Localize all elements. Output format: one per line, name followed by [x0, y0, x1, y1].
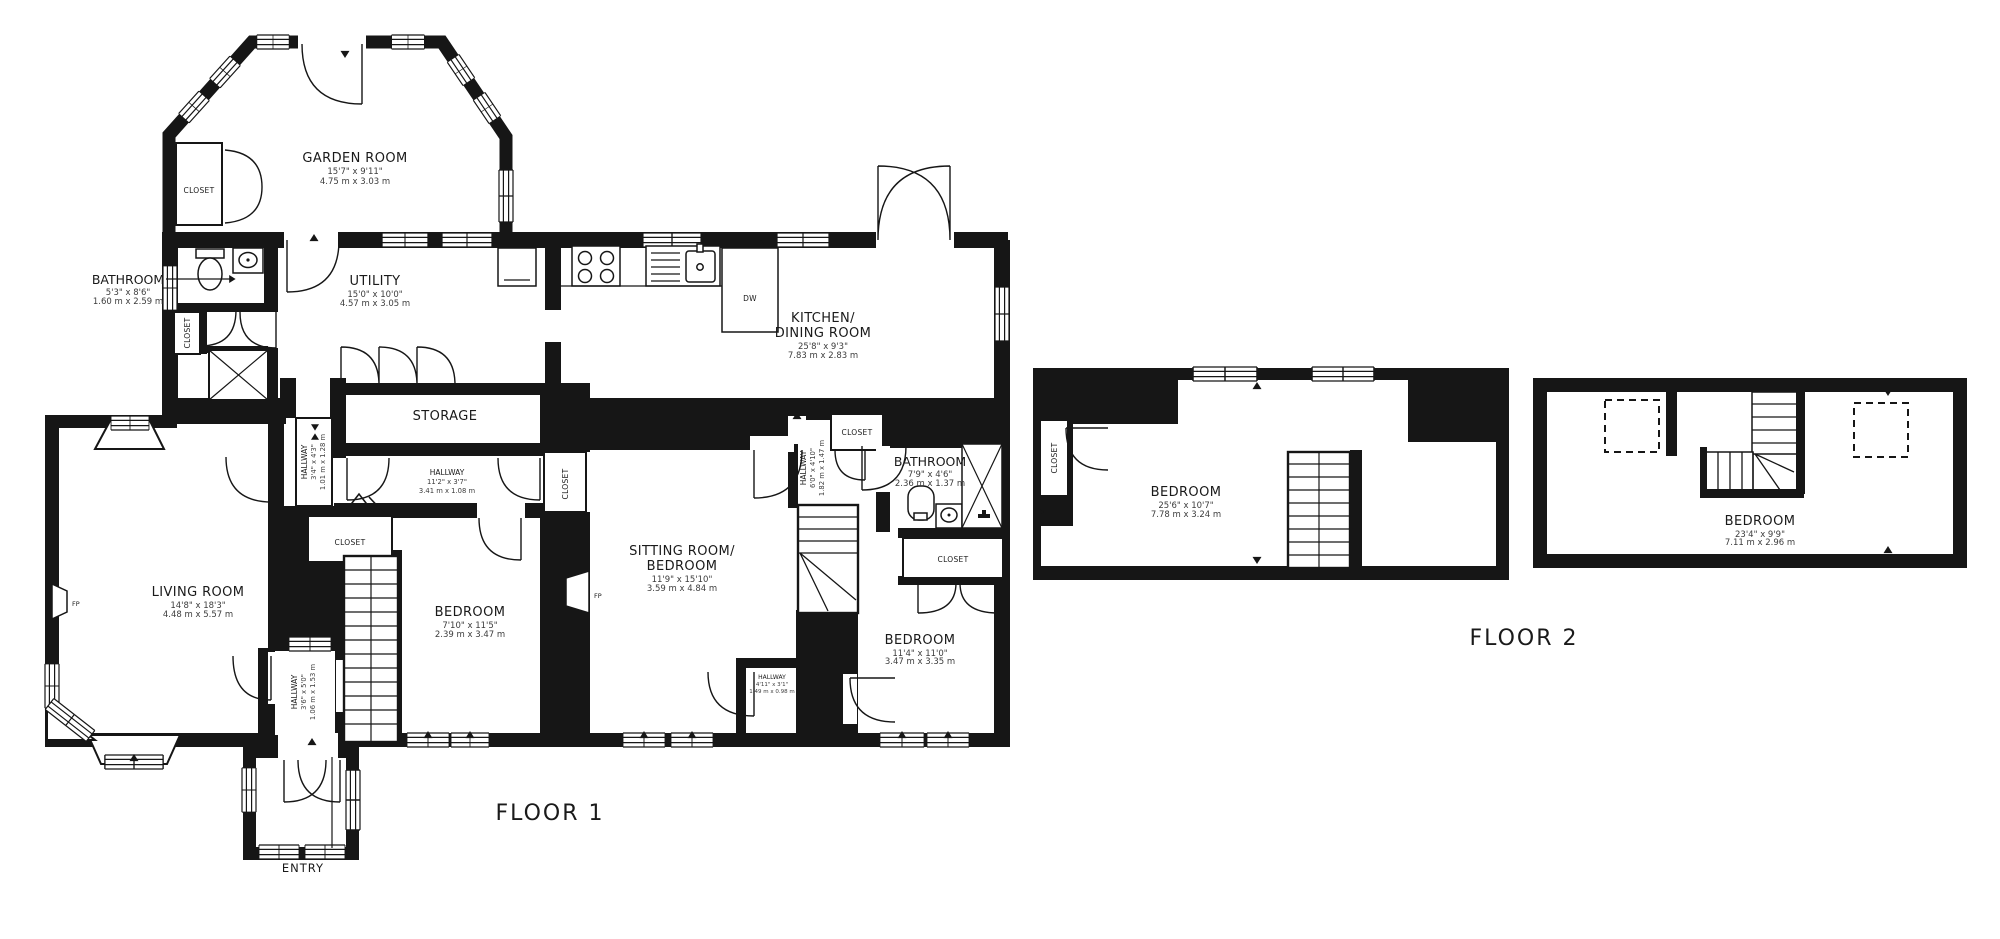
garden-room-label: GARDEN ROOM [302, 151, 407, 166]
floor2-right-plan: BEDROOM 23'4" x 9'9" 7.11 m x 2.96 m FLO… [1469, 378, 1967, 651]
hallway-main-size-m: 3.41 m x 1.08 m [419, 487, 476, 495]
toilet-icon [908, 486, 934, 520]
closet-label: CLOSET [842, 428, 873, 437]
hallway-side-size-m: 1.01 m x 1.28 m [319, 434, 327, 491]
floor1-stairs [344, 505, 858, 742]
window-icon [259, 845, 299, 859]
utility-label: UTILITY [349, 274, 400, 289]
bedroom1-label: BEDROOM [435, 605, 506, 620]
bedroom2-size-m: 3.47 m x 3.35 m [885, 657, 955, 667]
sitting-room-label-line1: SITTING ROOM/ [629, 544, 735, 559]
kitchen-size-m: 7.83 m x 2.83 m [788, 351, 858, 361]
window-icon [392, 35, 425, 49]
closet-label: CLOSET [1050, 442, 1059, 473]
living-room-size-m: 4.48 m x 5.57 m [163, 610, 233, 620]
hallway-entry-size-m: 1.06 m x 1.53 m [309, 664, 317, 721]
closet-label: CLOSET [335, 538, 366, 547]
kitchen-label-line2: DINING ROOM [775, 326, 871, 341]
entry-label: ENTRY [282, 861, 324, 875]
sitting-room-size-m: 3.59 m x 4.84 m [647, 584, 717, 594]
hallway-main-label: HALLWAY [430, 468, 465, 477]
window-icon [643, 233, 701, 247]
window-icon [257, 35, 289, 49]
floor2-left-plan: CLOSET BEDROOM 25'6" x 10'7" 7.78 m x 3.… [1033, 367, 1509, 580]
bathroom1-size-m: 1.60 m x 2.59 m [93, 297, 163, 307]
floor2-title: FLOOR 2 [1469, 626, 1578, 651]
closet-label: CLOSET [183, 317, 192, 348]
floor1-plan: GARDEN ROOM 15'7" x 9'11" 4.75 m x 3.03 … [45, 34, 1010, 875]
bathroom1-label: BATHROOM [92, 272, 164, 287]
window-icon [382, 233, 428, 247]
hallway-mid-label: HALLWAY [799, 450, 808, 485]
window-icon [305, 845, 345, 859]
closet-label: CLOSET [561, 468, 570, 499]
bedroom1-size-m: 2.39 m x 3.47 m [435, 630, 505, 640]
bathroom2-label: BATHROOM [894, 454, 966, 469]
kitchen-label-line1: KITCHEN/ [791, 311, 855, 326]
sink-icon [936, 504, 962, 528]
floorplan-page: GARDEN ROOM 15'7" x 9'11" 4.75 m x 3.03 … [0, 0, 2000, 939]
window-icon [111, 416, 149, 430]
hallway-mid-size-ft: 6'0" x 4'10" [809, 448, 817, 488]
window-icon [1312, 367, 1374, 381]
hallway-side-size-ft: 3'4" x 4'3" [310, 444, 318, 480]
floor2-bedroom-right-label: BEDROOM [1725, 514, 1796, 529]
window-icon [499, 170, 513, 222]
bedroom2-label: BEDROOM [885, 633, 956, 648]
closet-label: CLOSET [938, 555, 969, 564]
living-room-label: LIVING ROOM [152, 585, 245, 600]
hallway-mid-label-group: HALLWAY 6'0" x 4'10" 1.82 m x 1.47 m [799, 440, 826, 497]
hallway-rear-size-m: 1.49 m x 0.98 m [749, 689, 794, 695]
floor1-title: FLOOR 1 [495, 801, 604, 826]
sink-icon [233, 248, 263, 273]
sitting-room-label-line2: BEDROOM [647, 559, 718, 574]
floor2-bedroom-left-size-m: 7.78 m x 3.24 m [1151, 510, 1221, 520]
hallway-entry-size-ft: 3'6" x 5'0" [300, 674, 308, 710]
hallway-entry-label: HALLWAY [290, 674, 299, 709]
dishwasher-icon [722, 248, 778, 332]
garden-room-size-m: 4.75 m x 3.03 m [320, 177, 390, 187]
utility-size-m: 4.57 m x 3.05 m [340, 299, 410, 309]
hallway-mid-size-m: 1.82 m x 1.47 m [818, 440, 826, 497]
shower-icon [962, 444, 1002, 528]
closet-label: CLOSET [184, 186, 215, 195]
window-icon [442, 233, 492, 247]
floor2-bedroom-left-label: BEDROOM [1151, 485, 1222, 500]
fireplace-label: FP [72, 600, 80, 608]
hallway-side-label: HALLWAY [300, 444, 309, 479]
floor2-bedroom-right-size-m: 7.11 m x 2.96 m [1725, 538, 1795, 548]
dishwasher-label: DW [743, 294, 757, 303]
window-icon [777, 233, 829, 247]
window-icon [1193, 367, 1257, 381]
hallway-rear-size-ft: 4'11" x 3'1" [756, 682, 788, 688]
bathroom2-size-m: 2.36 m x 1.37 m [895, 479, 965, 489]
window-icon [289, 637, 331, 651]
window-icon [242, 768, 256, 812]
fireplace-label: FP [594, 592, 602, 600]
window-icon [995, 287, 1009, 341]
toilet-icon [196, 249, 224, 290]
floorplan-drawing: GARDEN ROOM 15'7" x 9'11" 4.75 m x 3.03 … [0, 0, 2000, 939]
hallway-main-size-ft: 11'2" x 3'7" [427, 478, 467, 486]
storage-label: STORAGE [413, 409, 478, 424]
kitchen-sink-icon [646, 244, 720, 286]
window-icon [163, 266, 177, 310]
window-icon [346, 770, 360, 830]
garden-room-size-ft: 15'7" x 9'11" [327, 167, 382, 177]
stove-icon [572, 246, 620, 286]
hallway-rear-label: HALLWAY [758, 674, 786, 681]
floor2-left-stairs [1288, 450, 1362, 570]
